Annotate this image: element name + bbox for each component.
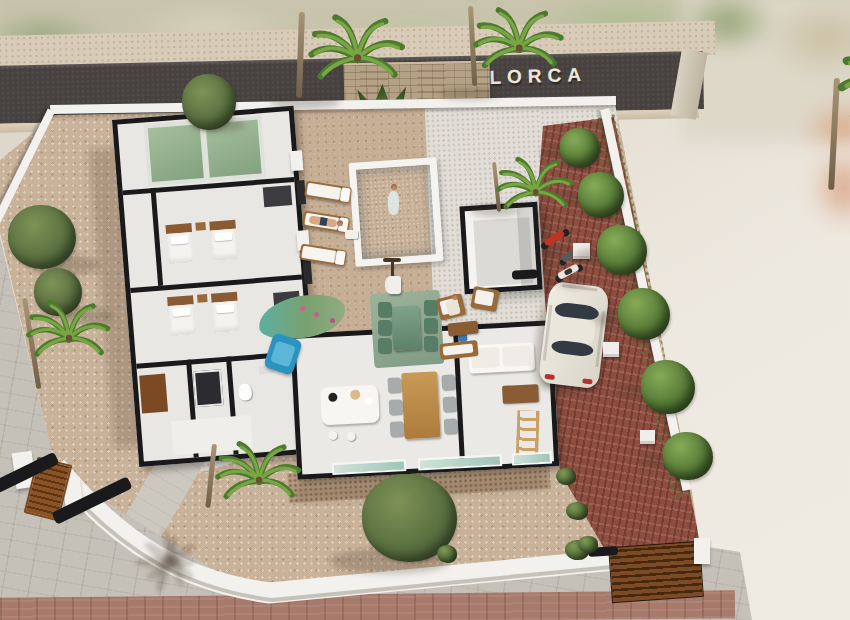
palm-tree [762, 0, 850, 92]
plate [350, 389, 361, 400]
dining-chair [444, 418, 458, 434]
nightstand [195, 222, 206, 231]
interior-wall [150, 188, 163, 286]
dining-chair [389, 399, 403, 415]
nightstand [197, 294, 208, 303]
wooden-bench [502, 384, 539, 404]
stool [346, 432, 355, 441]
hedge-tree [618, 288, 670, 340]
parasol-crossbar [383, 258, 401, 262]
outdoor-chair [424, 336, 437, 351]
driveway-gate [608, 541, 704, 603]
pilaster [290, 150, 304, 171]
sliding-glass-door [512, 451, 553, 465]
bush [566, 502, 588, 520]
lounge-armchair [470, 286, 499, 312]
lounger-headrest [340, 187, 351, 202]
outdoor-chair [424, 318, 437, 333]
round-tree [182, 74, 236, 130]
sofa [468, 342, 535, 373]
dining-table [401, 371, 440, 439]
bush [437, 545, 457, 563]
side-table [345, 230, 358, 239]
lounger-cushion [306, 183, 341, 200]
armchair-cushion [474, 289, 494, 306]
palm-shadow-star [135, 545, 255, 585]
bush [556, 468, 576, 485]
lounger-cushion [301, 246, 336, 263]
bed-pillow [172, 307, 191, 316]
hedge-tree [641, 360, 695, 414]
hedge-tree [663, 432, 713, 480]
pergola-column [388, 276, 401, 294]
doormat [512, 269, 538, 279]
bench-cushion [443, 344, 474, 356]
palm-shadow [440, 88, 500, 100]
bed-pillow [214, 232, 233, 241]
seated-person-head [452, 294, 458, 300]
flowers [300, 306, 305, 311]
bed [165, 223, 194, 265]
bush [578, 536, 598, 553]
gate-pillar-driveway [694, 538, 710, 564]
stool [328, 431, 337, 440]
hedge-tree [578, 172, 624, 218]
bed-pillow [216, 304, 235, 313]
sofa-cushion [502, 345, 531, 366]
closet [263, 185, 292, 207]
sliding-glass-door [332, 459, 407, 475]
grass-strip [148, 124, 204, 182]
dining-chair [441, 374, 455, 390]
bed [209, 220, 238, 262]
swimsuit [319, 217, 327, 226]
kitchen-island [320, 384, 380, 425]
dining-chair [387, 377, 401, 393]
blurred-background-orange-blob [802, 130, 850, 245]
palm-tree [422, 0, 522, 48]
palm-shadow [270, 95, 340, 109]
hedge-tree [560, 128, 600, 168]
sliding-glass-door [418, 454, 503, 470]
flowers [330, 318, 335, 323]
outdoor-chair [378, 302, 391, 317]
car-taillight [582, 378, 593, 384]
desk [139, 374, 168, 414]
planter-box [603, 342, 619, 357]
palm-tree [0, 258, 70, 338]
kitchen-item-dark [328, 393, 337, 402]
outdoor-chair [378, 320, 391, 335]
bed-pillow [170, 235, 189, 244]
outdoor-chair [378, 338, 391, 353]
car-taillight [544, 374, 555, 380]
bed [211, 292, 240, 334]
palm-tree [452, 118, 538, 192]
bather-body [388, 191, 399, 215]
palm-tree [252, 0, 362, 58]
hedge-tree [597, 225, 647, 275]
bed [167, 295, 196, 337]
white-car [538, 281, 610, 390]
lounger-headrest [335, 250, 346, 265]
flowers [314, 312, 319, 317]
dining-chair [443, 396, 457, 412]
render-scene: C/ MALLORCA [0, 0, 850, 620]
outdoor-dining-table [390, 305, 421, 351]
palm-shadow [470, 205, 520, 217]
bather-head [391, 184, 397, 190]
planter-box [640, 430, 655, 444]
palm-tree [168, 398, 260, 480]
dining-chair [390, 421, 404, 437]
armchair-seat [270, 340, 296, 367]
bowl [364, 397, 372, 405]
outdoor-chair [424, 300, 437, 315]
interior-wall [130, 275, 302, 293]
